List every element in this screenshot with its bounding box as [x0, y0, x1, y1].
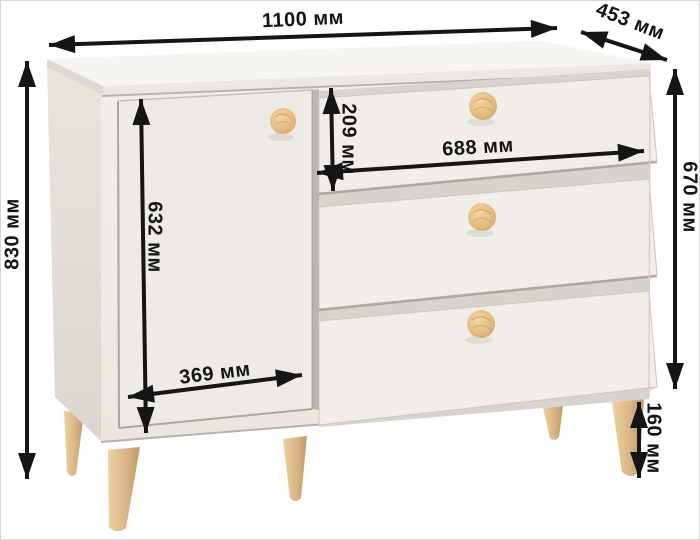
drawer-3-knob [467, 310, 495, 338]
door-knob [270, 108, 296, 134]
drawer-stack [319, 76, 657, 425]
cabinet-right-edge [649, 71, 650, 397]
dim-label-leg-height: 160 мм [642, 402, 665, 474]
dim-label-overall-width: 1100 мм [262, 7, 345, 34]
dim-label-overall-height: 830 мм [2, 198, 25, 270]
door-knob-shadow [268, 133, 294, 141]
cabinet-scene [1, 1, 700, 540]
door-left-gap [118, 102, 119, 428]
dim-label-top-drawer-height: 209 мм [337, 103, 360, 175]
dim-arrow-top-drawer-height [331, 88, 333, 191]
furniture-dimension-diagram: 1100 мм 453 мм 830 мм 670 мм 209 мм 688 … [0, 0, 700, 540]
cabinet-left-panel [47, 63, 103, 441]
drawer-1-knob [469, 92, 497, 120]
door-drawer-gap [312, 89, 319, 410]
dim-label-body-height: 670 мм [678, 161, 700, 233]
drawer-2-knob [468, 203, 496, 231]
dim-label-drawer-width: 688 мм [442, 134, 515, 161]
leg-front-middle [283, 436, 307, 501]
dim-label-door-height: 632 мм [143, 201, 166, 273]
leg-front-left [108, 447, 140, 531]
leg-back-right [543, 406, 563, 440]
